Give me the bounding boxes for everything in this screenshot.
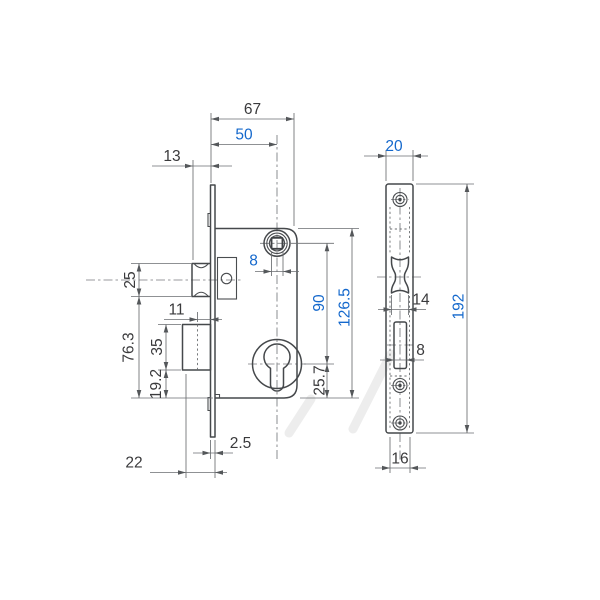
side-view-centerlines [86, 135, 306, 460]
dim-lower-body-height: 76.3 [121, 332, 138, 362]
dim-latch-width: 14 [412, 292, 430, 309]
front-view [377, 184, 423, 462]
dim-plate-thickness: 2.5 [230, 435, 252, 452]
deadbolt [183, 325, 211, 371]
dim-centres: 90 [311, 294, 328, 312]
dim-spindle-square: 8 [249, 253, 258, 270]
lock-technical-drawing-page: 67 50 13 8 25 76.3 11 35 19.2 90 25.7 12… [0, 0, 600, 600]
dim-overall-depth: 67 [244, 101, 261, 118]
dim-case-height: 126.5 [337, 288, 354, 327]
dim-deadbolt-throw: 11 [168, 302, 184, 319]
latch-housing-pin-hole [221, 273, 231, 283]
dim-slot-width: 8 [416, 342, 425, 359]
dim-latch-projection: 13 [163, 148, 180, 165]
dim-below-deadbolt: 19.2 [148, 369, 165, 399]
dim-cylinder-to-bottom: 25.7 [312, 365, 329, 395]
lock-technical-drawing: 67 50 13 8 25 76.3 11 35 19.2 90 25.7 12… [0, 0, 600, 600]
faceplate-front [386, 184, 413, 433]
dim-plate-width: 20 [385, 138, 403, 155]
side-view [86, 135, 306, 460]
dim-case-width: 16 [391, 451, 408, 468]
latch-housing [218, 258, 237, 300]
dim-plate-length: 192 [451, 294, 468, 320]
faceplate-edge [211, 185, 216, 437]
dim-backset: 50 [235, 127, 253, 144]
watermark [289, 354, 391, 433]
dim-deadbolt-height: 35 [149, 338, 166, 355]
dim-bottom-depth: 22 [125, 455, 142, 472]
dim-latch-height: 25 [122, 271, 139, 288]
